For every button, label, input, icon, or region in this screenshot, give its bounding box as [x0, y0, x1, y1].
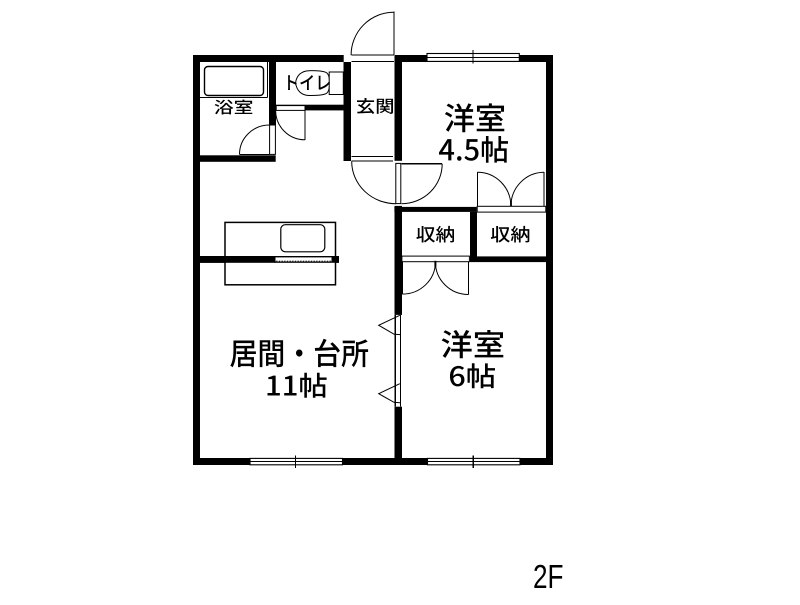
svg-text:2F: 2F	[533, 558, 564, 595]
